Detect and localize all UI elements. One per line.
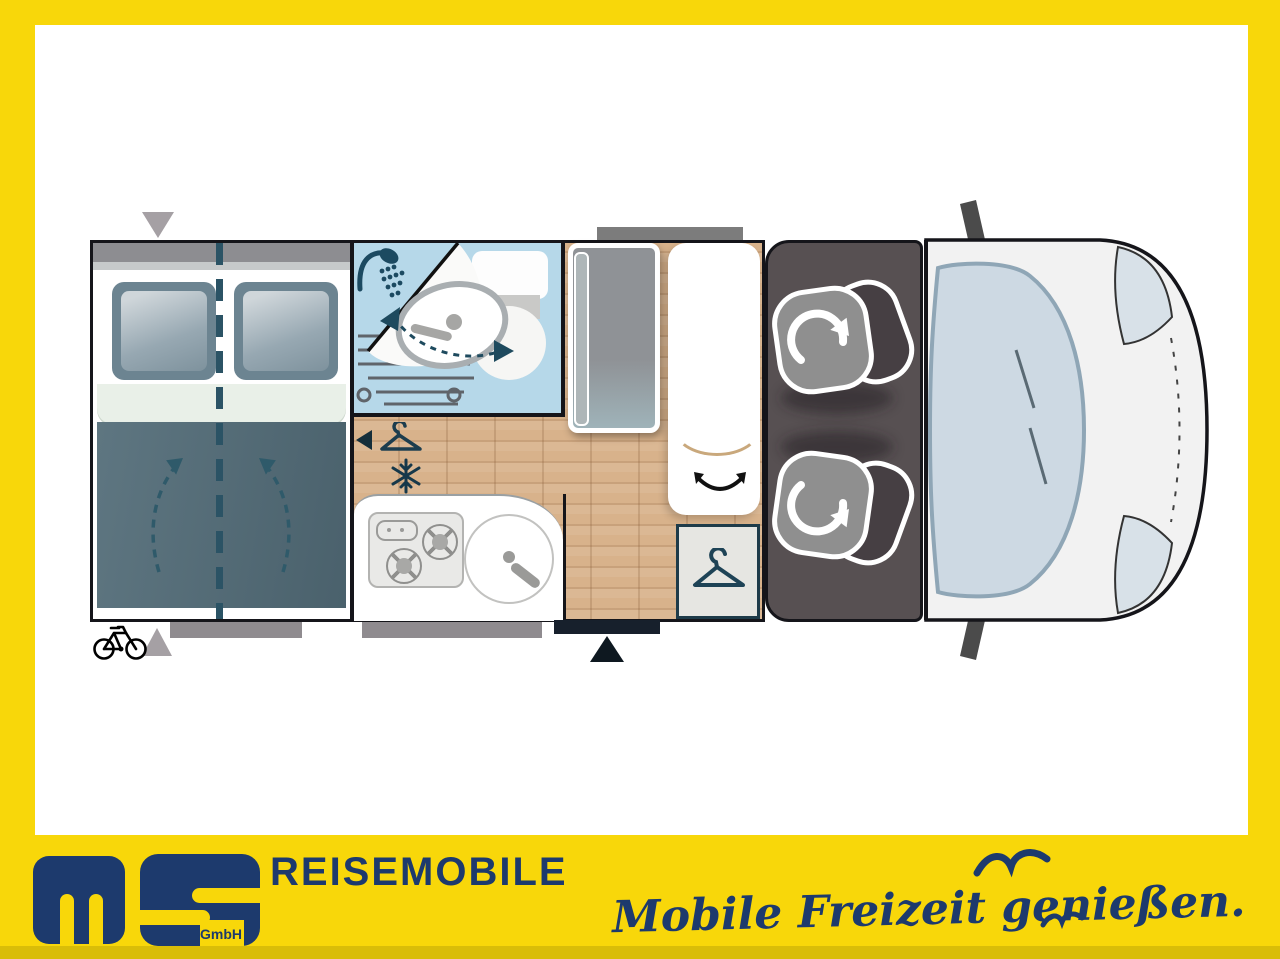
bed-access-triangle-top bbox=[142, 212, 174, 238]
bathroom-fittings bbox=[354, 243, 561, 413]
skirt-strip-kitchen bbox=[362, 622, 542, 638]
pillow-right bbox=[234, 282, 338, 380]
wall-kitchen-aisle bbox=[563, 494, 566, 622]
windshield bbox=[930, 264, 1084, 597]
logo-gmbh-label: GmbH bbox=[200, 924, 242, 944]
tagline: Mobile Freizeit genießen. bbox=[611, 876, 1246, 944]
sink-faucet-base bbox=[503, 551, 515, 563]
under-bed-access-triangle bbox=[356, 430, 372, 450]
logo-m-slot bbox=[60, 894, 74, 944]
seagull-icon bbox=[977, 853, 1047, 873]
skirt-strip-bed bbox=[170, 622, 302, 638]
entry-door-triangle bbox=[590, 636, 624, 662]
burner-left bbox=[386, 548, 422, 584]
table-rail bbox=[574, 252, 589, 426]
bench-seat-edge bbox=[672, 396, 762, 456]
company-name: REISEMOBILE bbox=[270, 850, 568, 895]
passenger-seat bbox=[770, 431, 920, 571]
faucet-base bbox=[446, 314, 462, 330]
advert-canvas: GmbH REISEMOBILE Mobile Freizeit genieße… bbox=[0, 0, 1280, 959]
shower-icon bbox=[360, 245, 405, 297]
wall-bath-bottom bbox=[350, 413, 565, 417]
wall-bath-dinette bbox=[561, 240, 565, 417]
bike-rack-icon bbox=[92, 616, 148, 662]
dinette-window-marker bbox=[597, 227, 743, 240]
wardrobe-hanger-icon bbox=[692, 548, 746, 590]
seagull-icon bbox=[1043, 914, 1082, 925]
logo-m-block bbox=[33, 856, 125, 944]
burner-right bbox=[422, 524, 458, 560]
logo-m-slot bbox=[89, 894, 103, 944]
hob-burners bbox=[368, 512, 464, 588]
swivel-cab-seats bbox=[765, 240, 923, 622]
hanger-icon bbox=[380, 422, 422, 454]
snowflake-icon bbox=[390, 458, 422, 494]
swivel-arrow-icon bbox=[690, 470, 750, 502]
driver-cab-front bbox=[918, 190, 1213, 670]
frame-bottom-shade bbox=[0, 946, 1280, 959]
bed-divider-line bbox=[216, 243, 223, 619]
seagull-icons bbox=[965, 843, 1085, 943]
logo-s-cut-top bbox=[192, 888, 260, 903]
pillow-left bbox=[112, 282, 216, 380]
hob-controls bbox=[376, 520, 418, 541]
driver-seat bbox=[770, 274, 920, 414]
entry-door-marker bbox=[554, 620, 660, 634]
